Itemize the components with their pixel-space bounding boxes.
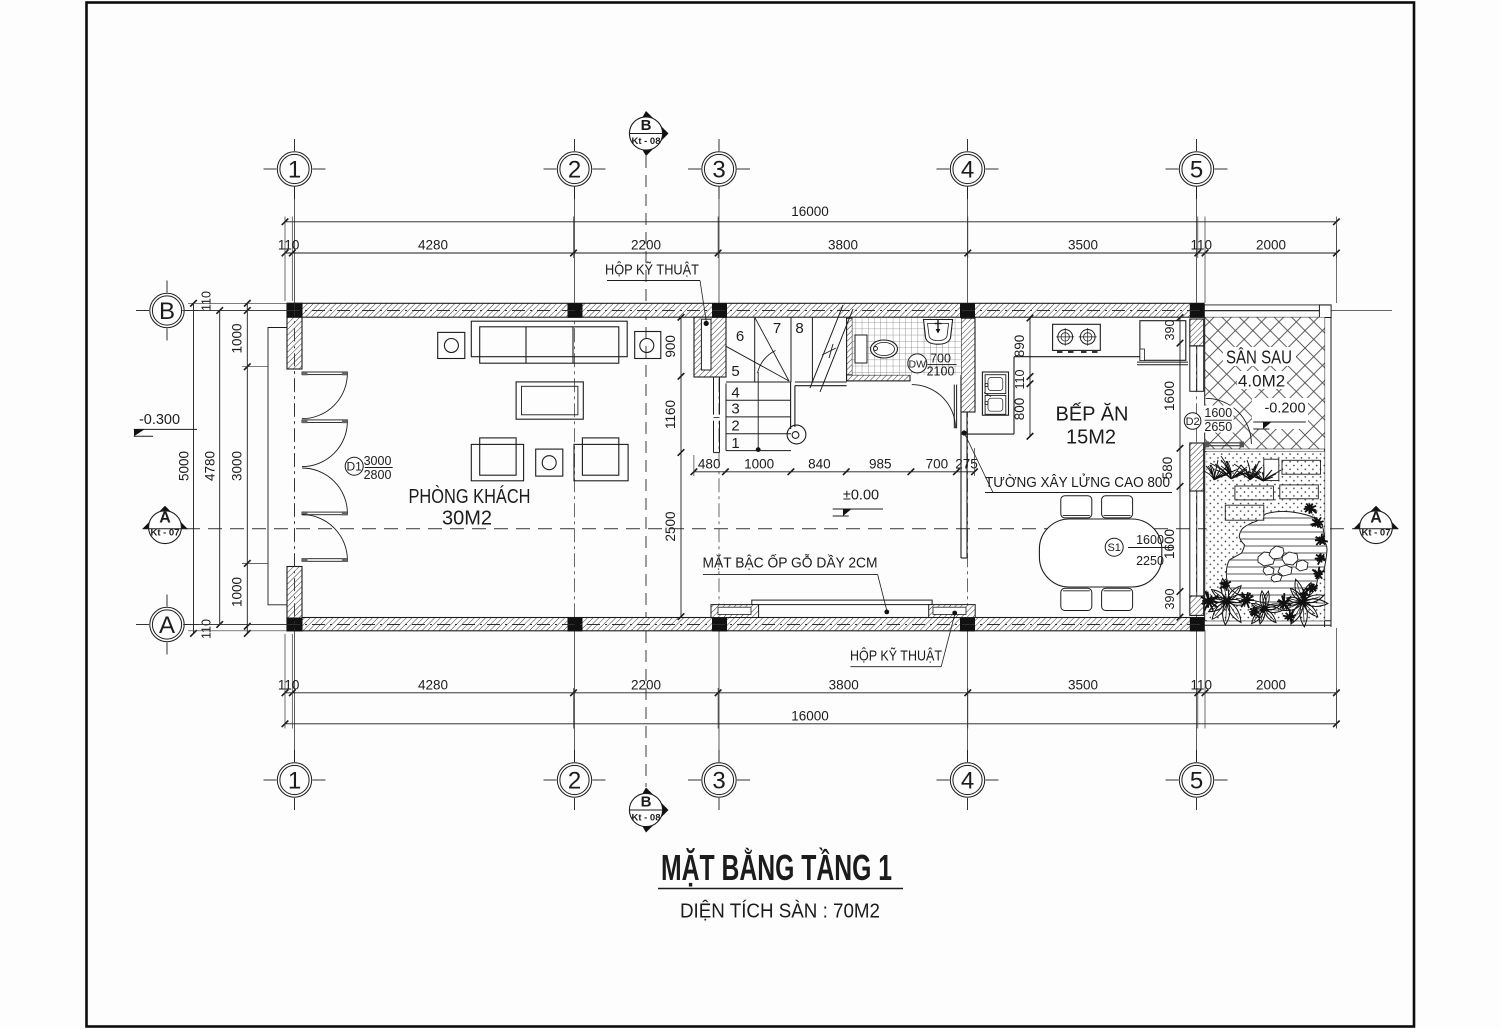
svg-text:B: B	[641, 117, 652, 134]
svg-text:1160: 1160	[663, 400, 678, 429]
svg-text:1000: 1000	[230, 323, 245, 353]
svg-text:-0.200: -0.200	[1264, 401, 1305, 417]
svg-text:SÂN SAU: SÂN SAU	[1226, 348, 1292, 368]
svg-text:Kt - 08: Kt - 08	[631, 136, 660, 147]
svg-text:D1: D1	[347, 460, 363, 474]
svg-text:1000: 1000	[230, 577, 245, 607]
svg-text:Kt - 08: Kt - 08	[631, 813, 660, 824]
svg-text:2800: 2800	[364, 468, 392, 482]
svg-text:390: 390	[1163, 589, 1177, 610]
svg-text:110: 110	[1191, 678, 1213, 693]
svg-text:3800: 3800	[828, 238, 858, 253]
svg-text:2: 2	[731, 418, 739, 435]
svg-text:BẾP ĂN: BẾP ĂN	[1056, 403, 1129, 426]
svg-text:1600: 1600	[1162, 529, 1177, 559]
svg-text:4280: 4280	[418, 238, 448, 253]
svg-text:1000: 1000	[744, 457, 774, 472]
svg-text:S1: S1	[1107, 542, 1120, 554]
svg-text:PHÒNG KHÁCH: PHÒNG KHÁCH	[409, 485, 531, 508]
svg-text:D2: D2	[1186, 416, 1200, 428]
svg-text:2200: 2200	[631, 238, 661, 253]
svg-text:110: 110	[278, 238, 300, 253]
svg-text:2500: 2500	[663, 511, 678, 541]
svg-text:2000: 2000	[1256, 238, 1286, 253]
svg-text:±0.00: ±0.00	[843, 488, 879, 504]
svg-text:30M2: 30M2	[442, 508, 492, 530]
svg-text:3: 3	[731, 401, 739, 418]
svg-text:800: 800	[1012, 398, 1027, 421]
svg-text:3000: 3000	[230, 451, 245, 481]
svg-text:DW: DW	[909, 358, 927, 370]
svg-text:3000: 3000	[364, 454, 392, 468]
svg-text:110: 110	[200, 619, 214, 639]
svg-text:390: 390	[1163, 320, 1177, 341]
svg-text:-0.300: -0.300	[139, 412, 180, 428]
svg-text:3800: 3800	[829, 678, 859, 693]
svg-text:1: 1	[288, 768, 301, 795]
svg-text:2650: 2650	[1204, 420, 1232, 434]
svg-text:HỘP KỸ THUẬT: HỘP KỸ THUẬT	[605, 262, 699, 279]
svg-text:1: 1	[731, 435, 739, 452]
svg-text:1600: 1600	[1204, 406, 1232, 420]
svg-text:700: 700	[926, 457, 949, 472]
svg-text:3500: 3500	[1068, 238, 1098, 253]
svg-text:B: B	[159, 298, 175, 325]
svg-text:3500: 3500	[1068, 678, 1098, 693]
svg-text:TƯỜNG XÂY LỬNG CAO 800: TƯỜNG XÂY LỬNG CAO 800	[985, 473, 1170, 491]
svg-text:5: 5	[1190, 157, 1203, 184]
svg-text:110: 110	[1191, 238, 1213, 253]
svg-text:MẶT BẰNG TẦNG 1: MẶT BẰNG TẦNG 1	[661, 847, 892, 888]
svg-text:16000: 16000	[791, 709, 829, 724]
svg-text:A: A	[159, 612, 175, 639]
svg-text:Kt - 07: Kt - 07	[150, 528, 179, 539]
svg-text:7: 7	[773, 320, 781, 337]
svg-text:MẶT BẬC ỐP GỖ DẦY 2CM: MẶT BẬC ỐP GỖ DẦY 2CM	[703, 554, 878, 572]
svg-text:3: 3	[712, 157, 725, 184]
svg-text:480: 480	[698, 457, 721, 472]
svg-text:890: 890	[1012, 335, 1027, 358]
svg-text:110: 110	[200, 291, 214, 311]
svg-text:A: A	[1370, 510, 1382, 527]
svg-text:3: 3	[712, 768, 725, 795]
svg-text:2200: 2200	[631, 678, 661, 693]
svg-text:4780: 4780	[203, 451, 218, 481]
svg-text:Kt - 07: Kt - 07	[1361, 528, 1390, 539]
svg-text:B: B	[641, 794, 652, 811]
svg-text:1: 1	[288, 157, 301, 184]
svg-text:1600: 1600	[1162, 381, 1177, 411]
svg-text:A: A	[159, 510, 171, 527]
svg-text:15M2: 15M2	[1066, 427, 1116, 449]
svg-text:4.0M2: 4.0M2	[1238, 372, 1285, 391]
svg-text:2100: 2100	[927, 365, 955, 379]
svg-text:8: 8	[795, 320, 803, 337]
svg-text:700: 700	[930, 352, 951, 366]
svg-text:5: 5	[731, 363, 739, 380]
svg-text:2: 2	[568, 768, 581, 795]
svg-text:6: 6	[736, 328, 744, 345]
svg-text:985: 985	[869, 457, 892, 472]
svg-text:5000: 5000	[177, 451, 192, 481]
svg-text:2000: 2000	[1256, 678, 1286, 693]
svg-text:4: 4	[961, 157, 974, 184]
svg-text:4280: 4280	[418, 678, 448, 693]
svg-text:1600: 1600	[1136, 533, 1164, 547]
svg-text:110: 110	[1013, 369, 1027, 389]
svg-text:840: 840	[808, 457, 831, 472]
svg-text:110: 110	[278, 678, 300, 693]
svg-text:2250: 2250	[1136, 554, 1164, 568]
svg-text:4: 4	[961, 768, 974, 795]
svg-text:5: 5	[1190, 768, 1203, 795]
svg-text:DIỆN TÍCH SÀN : 70M2: DIỆN TÍCH SÀN : 70M2	[680, 900, 880, 923]
svg-text:4: 4	[731, 385, 739, 402]
svg-text:2: 2	[568, 157, 581, 184]
svg-text:HỘP KỸ THUẬT: HỘP KỸ THUẬT	[850, 648, 942, 665]
svg-text:900: 900	[663, 335, 678, 358]
svg-text:16000: 16000	[791, 204, 829, 219]
